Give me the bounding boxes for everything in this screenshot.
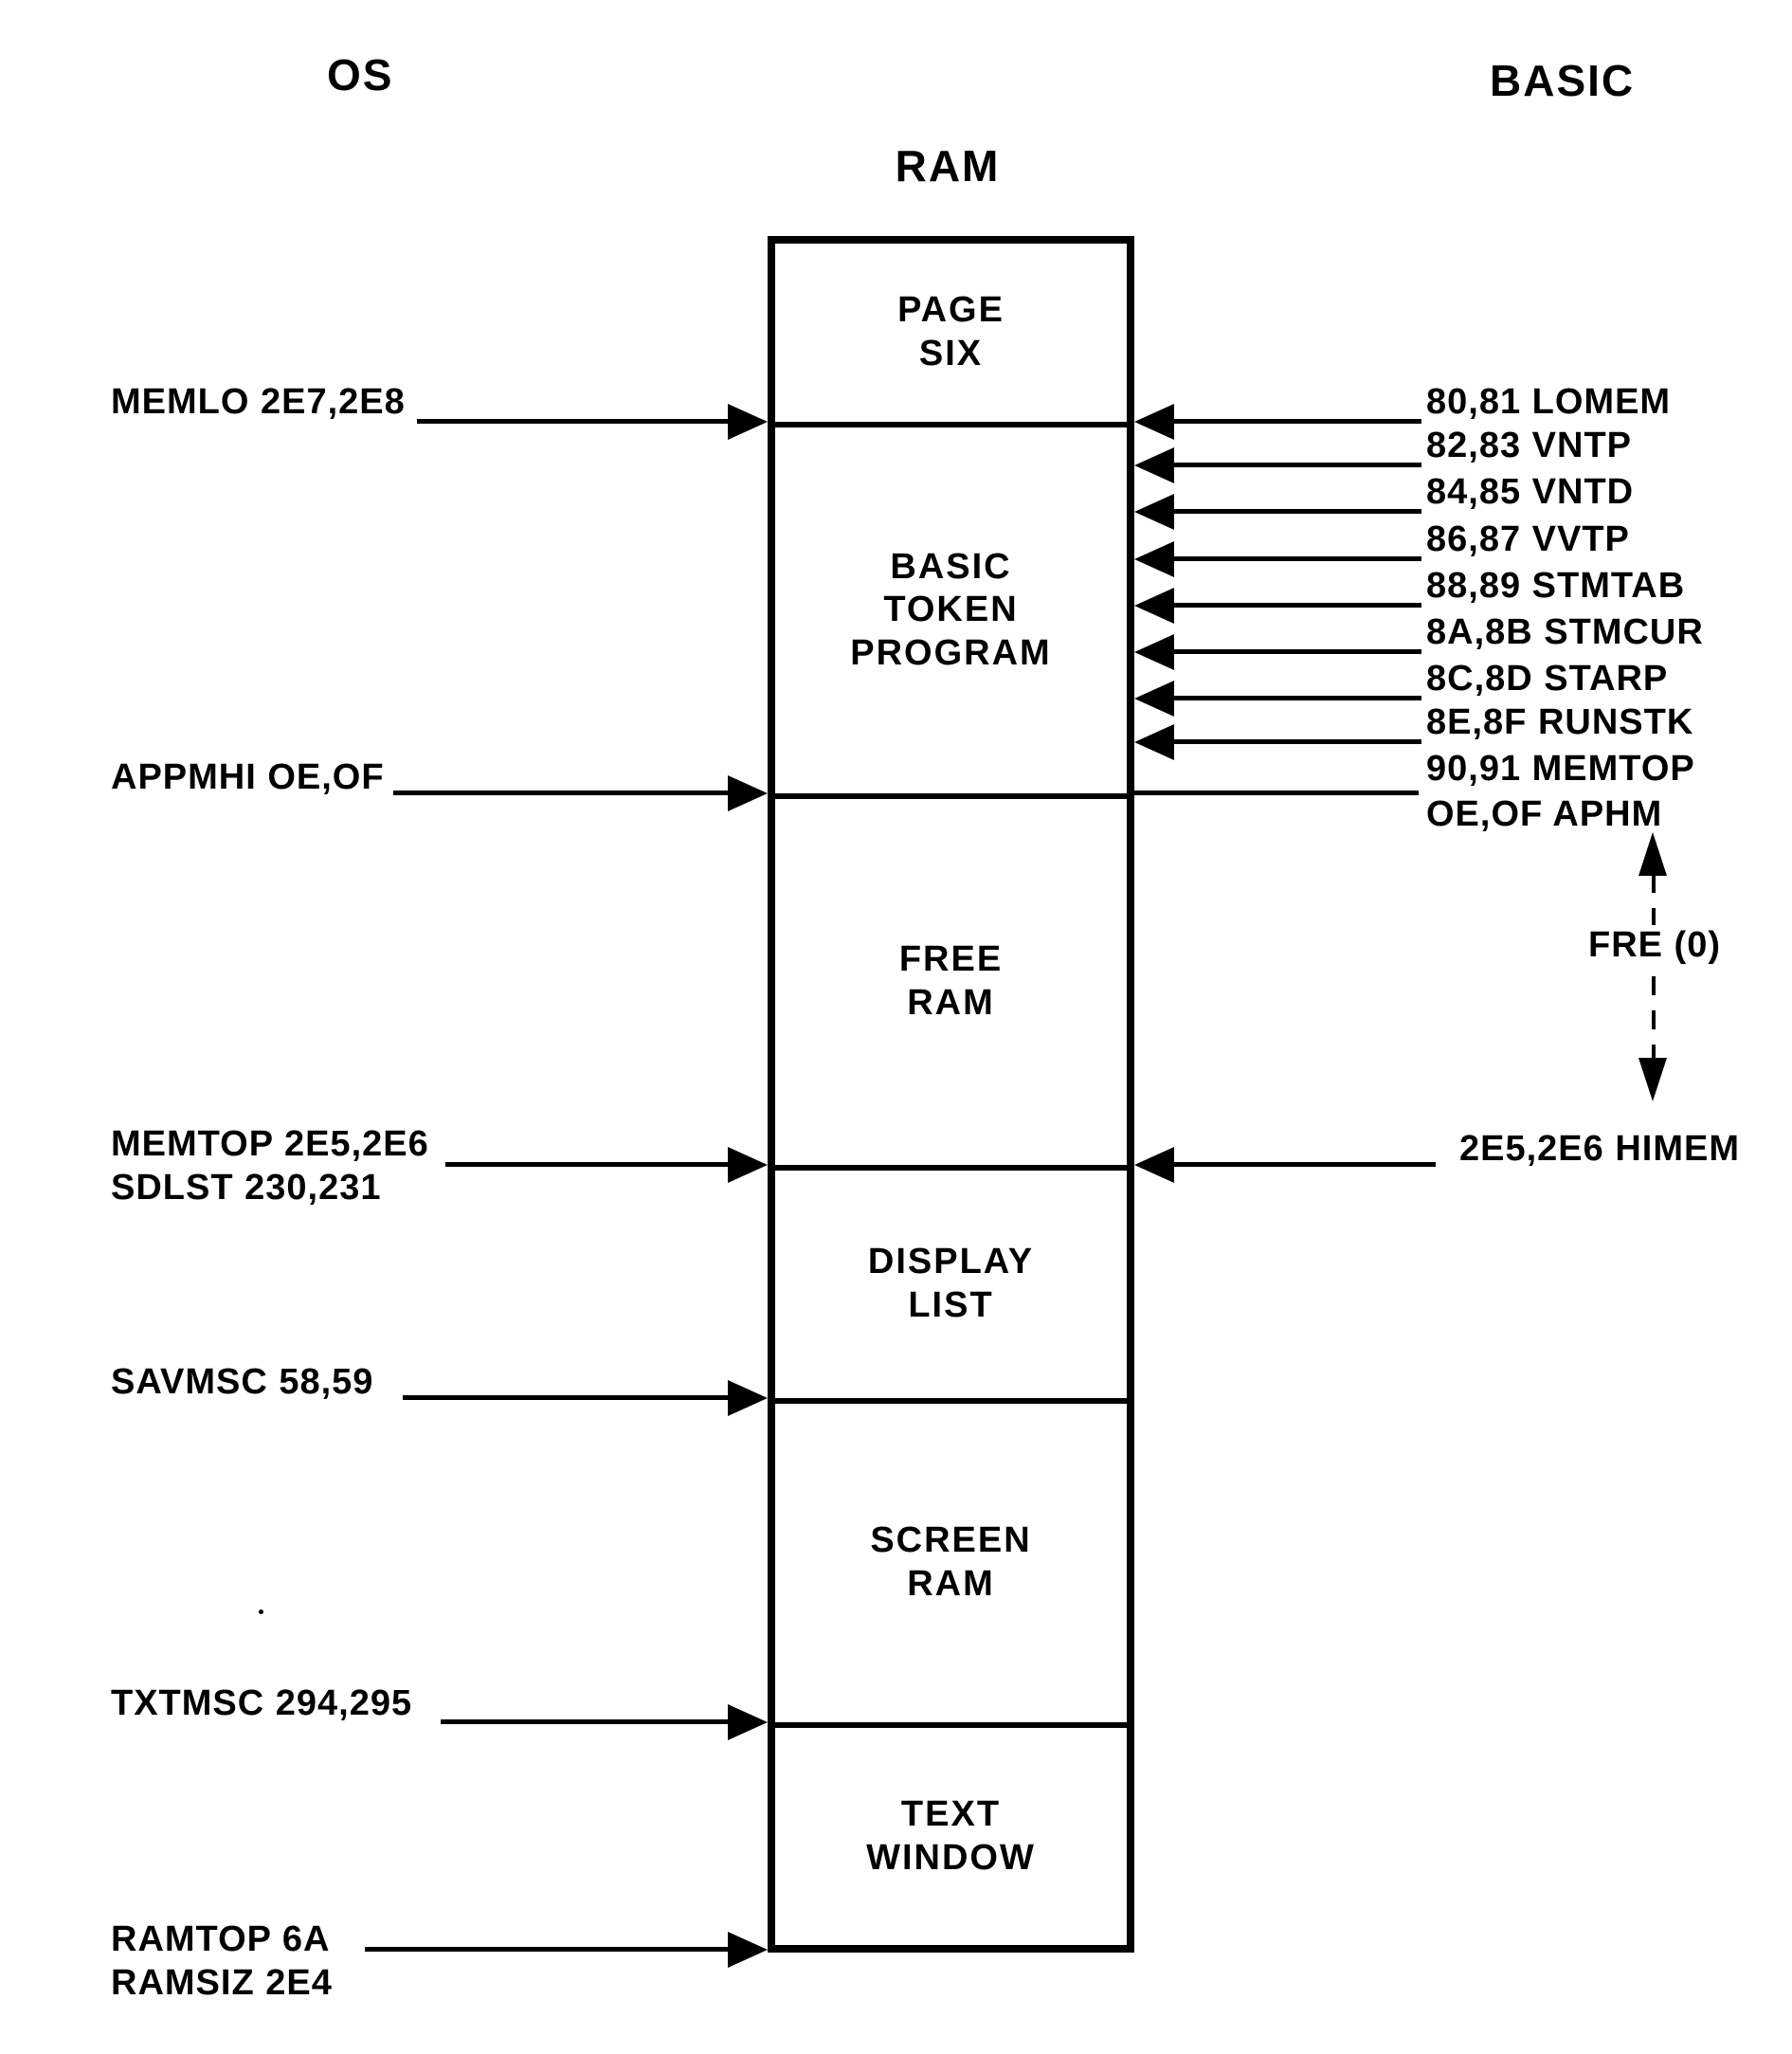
ramtop-arrow-line bbox=[365, 1947, 730, 1952]
starp-arrow-line bbox=[1173, 696, 1421, 700]
arrowhead-left-icon bbox=[1134, 681, 1174, 717]
ram-memory-box: PAGE SIX BASIC TOKEN PROGRAM FREE RAM DI… bbox=[768, 236, 1134, 1953]
basic-pointer-himem-label: 2E5,2E6 HIMEM bbox=[1459, 1127, 1740, 1171]
vvtp-arrow-line bbox=[1173, 556, 1421, 561]
section-display-list: DISPLAY LIST bbox=[775, 1165, 1127, 1398]
section-screen-ram: SCREEN RAM bbox=[775, 1398, 1127, 1722]
fre-dashed-line bbox=[1652, 874, 1656, 1058]
section-page-six: PAGE SIX bbox=[775, 244, 1127, 422]
lomem-arrow-line bbox=[1173, 419, 1421, 424]
arrowhead-right-icon bbox=[728, 1147, 768, 1183]
himem-arrow-line bbox=[1173, 1162, 1436, 1167]
basic-pointer-lomem-label: 80,81 LOMEM bbox=[1426, 380, 1671, 424]
arrowhead-right-icon bbox=[728, 1704, 768, 1740]
arrowhead-right-icon bbox=[728, 404, 768, 440]
stmtab-arrow-line bbox=[1173, 603, 1421, 608]
basic-pointer-stmtab-label: 88,89 STMTAB bbox=[1426, 564, 1685, 608]
basic-pointer-starp-label: 8C,8D STARP bbox=[1426, 657, 1668, 700]
arrowhead-left-icon bbox=[1134, 588, 1174, 624]
vntd-arrow-line bbox=[1173, 509, 1421, 514]
basic-pointer-runstk-label: 8E,8F RUNSTK bbox=[1426, 700, 1693, 744]
section-basic-token-program: BASIC TOKEN PROGRAM bbox=[775, 422, 1127, 793]
scan-artifact-dot bbox=[259, 1609, 263, 1614]
arrowhead-up-icon bbox=[1638, 832, 1667, 876]
runstk-arrow-line bbox=[1173, 739, 1421, 744]
basic-pointer-vntp-label: 82,83 VNTP bbox=[1426, 424, 1632, 467]
arrowhead-down-icon bbox=[1638, 1058, 1667, 1101]
txtmsc-arrow-line bbox=[441, 1719, 730, 1724]
arrowhead-left-icon bbox=[1134, 541, 1174, 577]
os-pointer-appmhi-label: APPMHI OE,OF bbox=[111, 755, 385, 799]
stmcur-arrow-line bbox=[1173, 649, 1421, 654]
basic-column-header: BASIC bbox=[1490, 55, 1635, 106]
arrowhead-left-icon bbox=[1134, 1147, 1174, 1183]
basic-pointer-aphm-label: OE,OF APHM bbox=[1426, 792, 1662, 836]
vntp-arrow-line bbox=[1173, 463, 1421, 467]
os-pointer-savmsc-label: SAVMSC 58,59 bbox=[111, 1360, 373, 1404]
arrowhead-left-icon bbox=[1134, 724, 1174, 760]
fre-span-label: FRE (0) bbox=[1579, 925, 1730, 966]
arrowhead-left-icon bbox=[1134, 447, 1174, 483]
ram-header: RAM bbox=[896, 140, 1001, 191]
os-column-header: OS bbox=[327, 49, 393, 100]
arrowhead-left-icon bbox=[1134, 634, 1174, 670]
os-pointer-memtop-sdlst-label: MEMTOP 2E5,2E6 SDLST 230,231 bbox=[111, 1122, 429, 1209]
basic-pointer-vntd-label: 84,85 VNTD bbox=[1426, 470, 1634, 514]
savmsc-arrow-line bbox=[403, 1395, 730, 1400]
arrowhead-right-icon bbox=[728, 775, 768, 811]
section-free-ram: FREE RAM bbox=[775, 793, 1127, 1165]
section-text-window: TEXT WINDOW bbox=[775, 1722, 1127, 1945]
arrowhead-right-icon bbox=[728, 1932, 768, 1968]
appmhi-arrow-line bbox=[393, 791, 730, 795]
os-pointer-txtmsc-label: TXTMSC 294,295 bbox=[111, 1681, 412, 1725]
basic-pointer-vvtp-label: 86,87 VVTP bbox=[1426, 518, 1630, 561]
basic-pointer-memtop-label: 90,91 MEMTOP bbox=[1426, 747, 1695, 791]
memlo-arrow-line bbox=[417, 419, 730, 424]
memtop-arrow-line bbox=[445, 1162, 730, 1167]
os-pointer-ramtop-ramsiz-label: RAMTOP 6A RAMSIZ 2E4 bbox=[111, 1918, 333, 2005]
arrowhead-left-icon bbox=[1134, 494, 1174, 530]
arrowhead-left-icon bbox=[1134, 404, 1174, 440]
arrowhead-right-icon bbox=[728, 1380, 768, 1416]
os-pointer-memlo-label: MEMLO 2E7,2E8 bbox=[111, 380, 406, 424]
memtop-90-91-line bbox=[1134, 791, 1419, 795]
basic-pointer-stmcur-label: 8A,8B STMCUR bbox=[1426, 610, 1704, 654]
